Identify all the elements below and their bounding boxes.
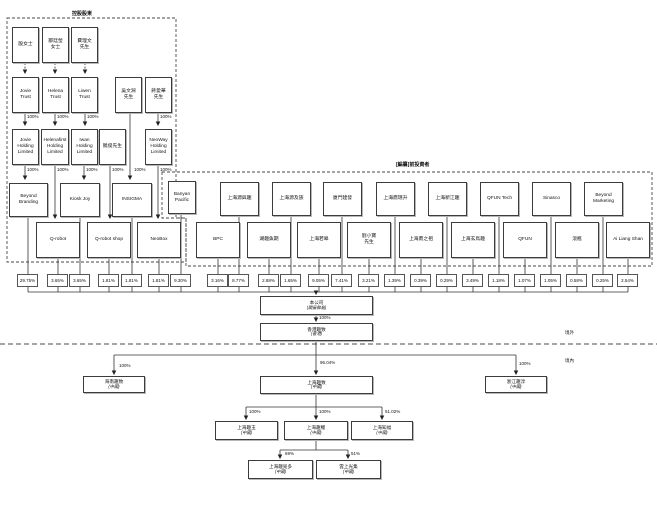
node-ms-yin: 殷女士 (12, 27, 39, 63)
ownership-pct: 3.49% (462, 274, 483, 287)
node-gunping: 滾瓶 (555, 222, 599, 258)
node-q-robot-shop: Q-robot shop (87, 222, 131, 258)
entity-jurisdiction: (中國) (310, 431, 321, 436)
node-shanghai-quzhi: 上海趣致 (中國) (260, 376, 373, 394)
node-sinasco: Sinasco (532, 182, 571, 216)
node-beyond-marketing: Beyond Marketing (584, 182, 623, 216)
node-jovie-trust: Jovie Trust (12, 77, 39, 113)
entity-jurisdiction: (開曼群島) (307, 306, 327, 311)
ownership-pct: 1.81% (98, 274, 119, 287)
node-shanghai-zhifu: 上海知福 (中國) (351, 421, 413, 440)
node-neobox: NeoBox (137, 222, 181, 258)
ownership-pct: 0.25% (592, 274, 613, 287)
node-mr-fei: 費理文 先生 (71, 27, 98, 63)
node-liwen-trust: Liwen Trust (71, 77, 98, 113)
edge-pct: 100% (319, 409, 331, 414)
node-beyond-branding: Beyond Branding (9, 183, 48, 217)
node-qfun: QFUN (503, 222, 547, 258)
ownership-pct: 29.75% (17, 274, 38, 287)
node-jovie-holding: Jovie Holding Limited (12, 129, 39, 165)
pre-investors-label: [編纂]前投資者 (396, 161, 429, 168)
entity-jurisdiction: (中國) (241, 431, 252, 436)
node-shanghai-ruogao: 上海若皋 (297, 222, 341, 258)
node-qfun-tech: QFUN Tech (480, 182, 519, 216)
ownership-pct: 1.18% (488, 274, 509, 287)
ownership-pct: 0.39% (410, 274, 431, 287)
node-helena-trust: Helena Trust (42, 77, 69, 113)
entity-jurisdiction: (香港) (311, 332, 322, 337)
edge-pct: 100% (519, 361, 531, 366)
edge-pct: 100% (57, 114, 69, 119)
ownership-pct: 0.58% (566, 274, 587, 287)
entity-jurisdiction: (中國) (376, 431, 387, 436)
node-bpc: BPC (196, 222, 240, 258)
node-ms-zou: 鄒廷瑩 女士 (42, 27, 69, 63)
ownership-pct: 1.81% (121, 274, 142, 287)
entity-jurisdiction: (中國) (108, 385, 119, 390)
node-q-robot: Q-robot (36, 222, 80, 258)
ownership-pct: 1.05% (540, 274, 561, 287)
node-zhejiang-quchun: 浙江趣淳 (中國) (485, 376, 547, 393)
edge-pct: 100% (57, 167, 69, 172)
entity-jurisdiction: (中國) (311, 385, 322, 390)
offshore-label: 境外 (565, 330, 574, 336)
edge-pct: 100% (160, 114, 172, 119)
edge-pct: 100% (134, 167, 146, 172)
ownership-pct: 9.05% (308, 274, 329, 287)
edge-pct: 100% (112, 167, 124, 172)
node-shanghai-yingminsheng: 上海鷹珉升 (376, 182, 415, 216)
node-helenafirst-holding: Helenafirst Holding Limited (41, 129, 69, 165)
ownership-pct: 1.07% (514, 274, 535, 287)
ownership-pct: 0.29% (436, 274, 457, 287)
edge-pct: 96.04% (320, 360, 335, 365)
node-banyan-pacific: Banyan Pacific (168, 181, 196, 214)
ownership-pct: 3.65% (69, 274, 90, 287)
node-mr-jiang: 蔣愛華 先生 (145, 77, 172, 113)
node-shanghai-qumiduo: 上海趣覓多 (中國) (248, 460, 313, 479)
node-xiamen-jianfa: 廈門建發 (323, 182, 362, 216)
edge-pct: 51.02% (385, 409, 400, 414)
ownership-pct: 7.41% (331, 274, 352, 287)
edge-pct: 69% (285, 451, 294, 456)
edge-pct: 100% (249, 409, 261, 414)
ownership-pct: 1.81% (148, 274, 169, 287)
edge-pct: 100% (86, 167, 98, 172)
node-hainan-quzhi: 海南趣致 (中國) (83, 376, 145, 393)
edge-pct: 100% (119, 363, 131, 368)
node-the-company: 本公司 (開曼群島) (260, 296, 373, 315)
ownership-pct: 3.65% (47, 274, 68, 287)
edge-pct: 100% (27, 114, 39, 119)
ownership-pct: 3.16% (207, 274, 228, 287)
node-shanghai-yuanjizu: 上海源及族 (272, 182, 311, 216)
edge-pct: 100% (27, 167, 39, 172)
node-iwan-holding: Iwan Holding Limited (71, 129, 98, 165)
node-mr-liu: 劉小寶 先生 (347, 222, 391, 258)
node-yunshang: 雲上光集 (中國) (316, 460, 381, 479)
ownership-pct: 1.65% (280, 274, 301, 287)
edge-pct: 51% (351, 451, 360, 456)
ownership-pct: 9.30% (170, 274, 191, 287)
node-mr-wu: 吳文淵 先生 (115, 77, 142, 113)
node-shanghai-xuanniaoqu: 上海玄鳥趣 (451, 222, 495, 258)
node-shanghai-xinjiangqu: 上海新江趣 (428, 182, 467, 216)
entity-jurisdiction: (中國) (275, 470, 286, 475)
node-shanghai-quyu: 上海趣玉 (中國) (215, 421, 278, 440)
node-hu-quyuqi: 湖趣魚期 (247, 222, 291, 258)
ownership-pct: 2.54% (617, 274, 638, 287)
controlling-shareholders-label: 控股股東 (72, 10, 92, 17)
entity-jurisdiction: (中國) (343, 470, 354, 475)
ownership-pct: 8.77% (228, 274, 249, 287)
node-mr-rao: 饒俊先生 (99, 129, 126, 165)
ownership-pct: 2.88% (258, 274, 279, 287)
node-shanghai-yuanyuqu: 上海源與趣 (220, 182, 259, 216)
node-shanghai-quli: 上海趣鯉 (中國) (284, 421, 348, 440)
ownership-pct: 1.39% (384, 274, 405, 287)
node-kiosk-joy: Kiosk Joy (60, 183, 100, 217)
org-chart: 控股股東 [編纂]前投資者 境外 境內 殷女士 鄒廷瑩 女士 費理文 先生 Jo… (0, 0, 657, 508)
onshore-label: 境內 (565, 358, 574, 364)
entity-jurisdiction: (中國) (510, 385, 521, 390)
node-ai-liang-shan: Ai Liang Shan (606, 222, 650, 258)
ownership-pct: 3.21% (358, 274, 379, 287)
edge-pct: 100% (319, 315, 331, 320)
node-hk-quzhi: 香港趣致 (香港) (260, 323, 373, 341)
edge-pct: 100% (160, 167, 172, 172)
node-shanghai-yingzhizu: 上海鷹之祖 (399, 222, 443, 258)
edge-pct: 100% (87, 114, 99, 119)
node-insigma: INSIGMA (112, 183, 152, 217)
node-neoway-holding: NeoWay Holding Limited (145, 129, 172, 165)
